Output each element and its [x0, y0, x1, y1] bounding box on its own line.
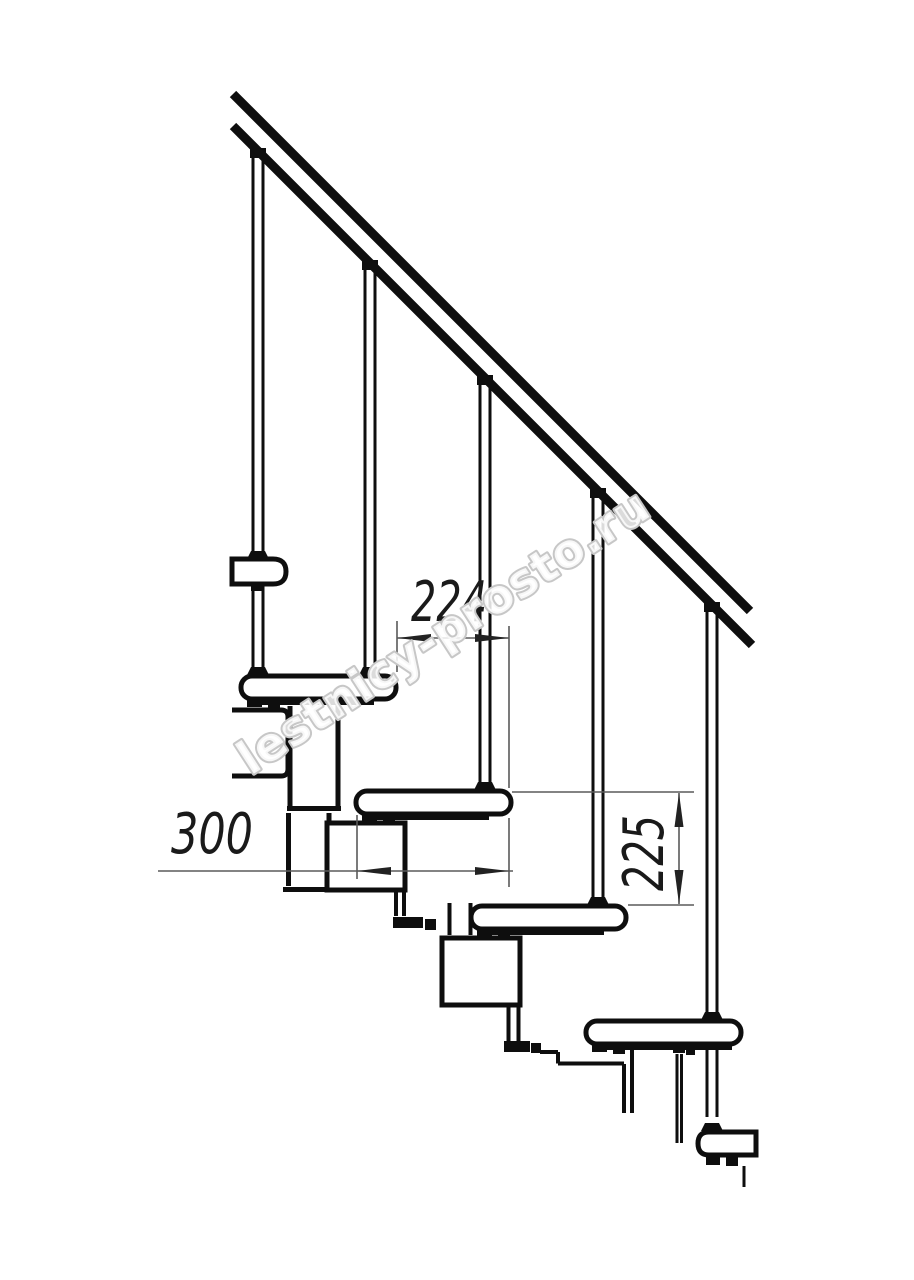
dimension-label-step-rise: 225 [612, 815, 677, 891]
module-cutoff-outline [540, 1050, 632, 1113]
module-clip [686, 1043, 695, 1055]
tread [356, 791, 511, 814]
module-clip [251, 583, 264, 591]
module-clip [393, 917, 423, 928]
module-clip [706, 1154, 720, 1165]
handrail [233, 94, 752, 645]
module-link-pipe [396, 890, 404, 916]
module-clip [673, 1042, 685, 1053]
module-cutoff-outline [677, 1054, 682, 1143]
module-clip [247, 697, 262, 707]
module-clip [531, 1043, 541, 1053]
support-module [442, 938, 520, 1005]
baluster [701, 602, 723, 1131]
module-clip [477, 927, 492, 937]
module-clip [362, 812, 377, 822]
tread-partial-top [232, 559, 286, 584]
module-clip [504, 1041, 530, 1052]
staircase-drawing: 224 300 225 lestnicy-prosto.ru [0, 0, 914, 1280]
support-module [327, 823, 405, 890]
tread [586, 1021, 741, 1044]
module-clip [726, 1154, 738, 1166]
module-link-column [450, 903, 471, 935]
tread [471, 906, 626, 929]
arrowhead-right [475, 867, 509, 875]
module-clip [613, 1042, 625, 1054]
tread-partial-bottom [698, 1132, 756, 1155]
module-clip [592, 1042, 607, 1052]
dimension-label-tread-depth: 300 [171, 802, 253, 867]
baluster [247, 148, 269, 675]
baluster [359, 260, 381, 675]
module-link-pipe [509, 1005, 519, 1041]
module-clip [425, 919, 436, 930]
module-clip [383, 812, 395, 824]
module-clip [498, 927, 510, 939]
watermark-text: lestnicy-prosto.ru [227, 478, 659, 785]
technical-drawing-canvas: 224 300 225 lestnicy-prosto.ru [0, 0, 914, 1280]
